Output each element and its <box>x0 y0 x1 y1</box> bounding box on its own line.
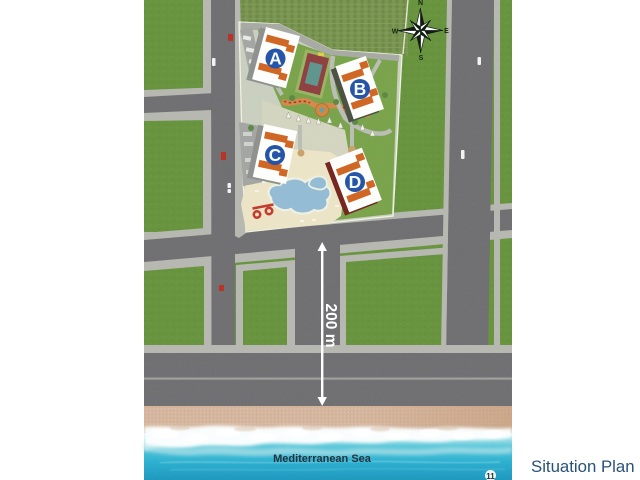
svg-text:Situation Plan: Situation Plan <box>531 457 635 476</box>
